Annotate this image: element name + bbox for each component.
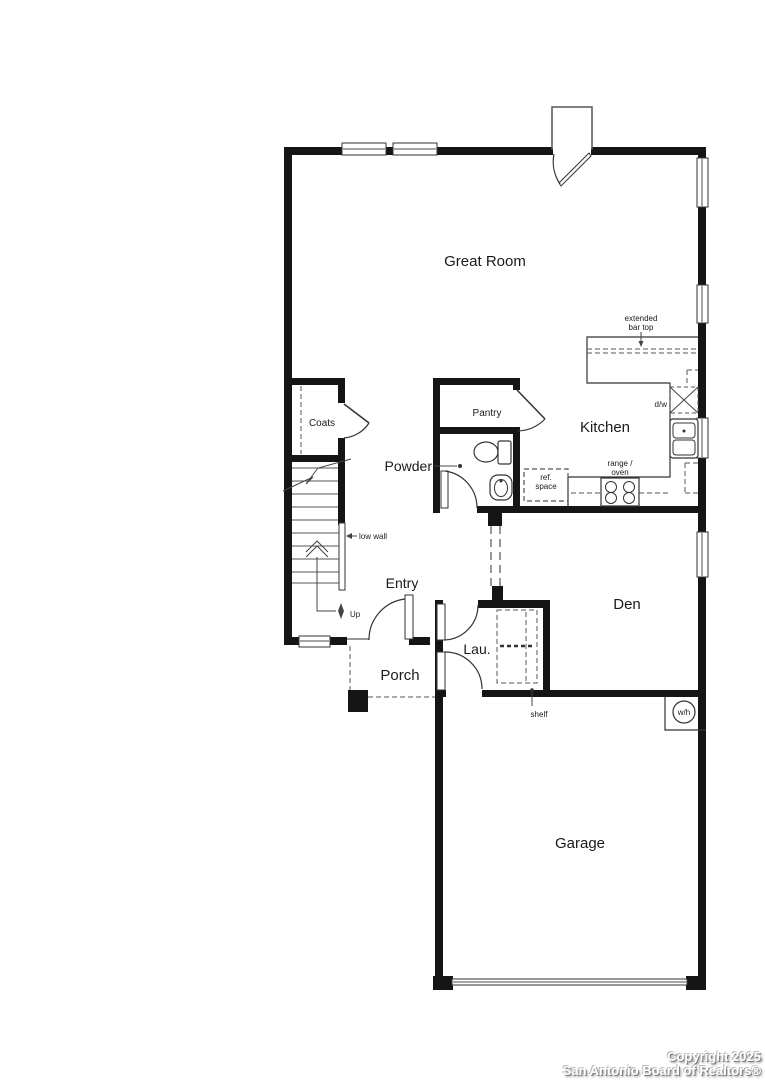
bar-top-annotation: extended bar top bbox=[625, 314, 658, 347]
pantry-door bbox=[517, 390, 545, 431]
range-label-2: oven bbox=[611, 468, 628, 477]
kitchen-sink bbox=[670, 419, 698, 458]
windows bbox=[299, 143, 708, 647]
interior-walls bbox=[284, 378, 706, 697]
coats-door bbox=[344, 404, 369, 438]
low-wall-label: low wall bbox=[359, 532, 387, 541]
entry-door bbox=[369, 595, 413, 640]
water-heater-label: w/h bbox=[677, 708, 690, 717]
window bbox=[697, 418, 708, 458]
range-label-1: range / bbox=[608, 459, 634, 468]
room-label-garage: Garage bbox=[555, 835, 605, 852]
room-label-entry: Entry bbox=[386, 575, 419, 591]
copyright-notice: Copyright 2025 San Antonio Board of Real… bbox=[563, 1050, 761, 1078]
toilet bbox=[474, 441, 511, 464]
room-label-laundry: Lau. bbox=[463, 641, 490, 657]
window bbox=[342, 143, 386, 155]
room-label-kitchen: Kitchen bbox=[580, 419, 630, 436]
back-door bbox=[552, 107, 592, 186]
bar-top-label-2: bar top bbox=[629, 323, 654, 332]
powder-sink bbox=[490, 475, 512, 500]
window bbox=[697, 285, 708, 323]
low-wall-annotation: low wall bbox=[346, 532, 387, 541]
floor-plan-drawing: w/h extended bar top d/w range / oven re… bbox=[0, 0, 765, 1080]
laundry-hall-door bbox=[437, 604, 478, 640]
up-label: Up bbox=[350, 610, 361, 619]
bar-top-label-1: extended bbox=[625, 314, 658, 323]
range-oven bbox=[601, 478, 639, 506]
ref-space-label-2: space bbox=[535, 482, 557, 491]
shelf-label: shelf bbox=[531, 710, 549, 719]
dishwasher bbox=[670, 387, 698, 413]
exterior-walls bbox=[284, 147, 706, 990]
dishwasher-label: d/w bbox=[655, 400, 668, 409]
copyright-line: Copyright 2025 bbox=[563, 1050, 761, 1064]
room-label-pantry: Pantry bbox=[473, 408, 502, 419]
room-label-powder: Powder bbox=[385, 458, 433, 474]
stair-up-arrow bbox=[306, 541, 344, 619]
garage-overhead-door bbox=[452, 979, 687, 985]
window bbox=[697, 158, 708, 207]
floor-plan-page: w/h extended bar top d/w range / oven re… bbox=[0, 0, 765, 1080]
window bbox=[393, 143, 437, 155]
room-label-den: Den bbox=[613, 596, 641, 613]
stair-low-wall bbox=[339, 523, 345, 590]
laundry-garage-door bbox=[437, 652, 482, 690]
window bbox=[697, 532, 708, 577]
room-label-porch: Porch bbox=[380, 667, 419, 684]
window bbox=[299, 636, 330, 647]
room-label-great-room: Great Room bbox=[444, 253, 526, 270]
copyright-org: San Antonio Board of Realtors® bbox=[563, 1064, 761, 1078]
room-label-coats: Coats bbox=[309, 418, 335, 429]
ref-space-label-1: ref. bbox=[540, 473, 552, 482]
washer-dryer-space bbox=[497, 610, 537, 683]
powder-door bbox=[441, 471, 477, 508]
